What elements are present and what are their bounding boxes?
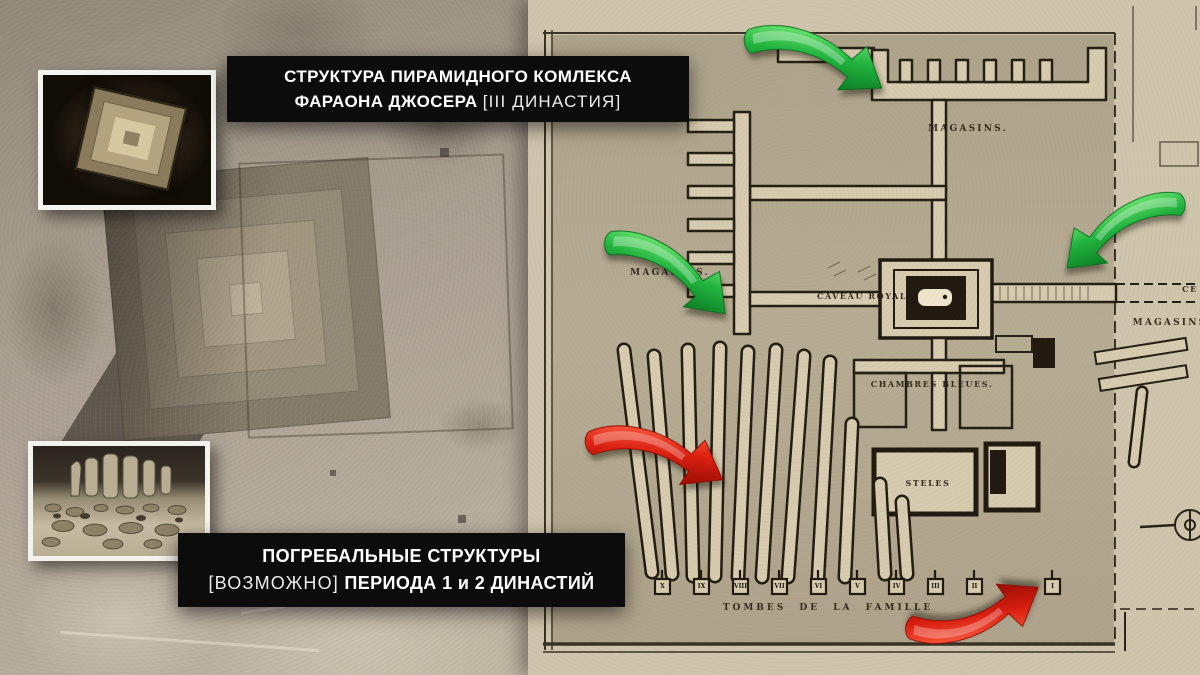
label-steles: STELES <box>906 478 951 488</box>
ruin-mark <box>330 470 336 476</box>
caption-line-light: [III ДИНАСТИЯ] <box>483 92 622 111</box>
tomb-numeral: VI <box>811 583 826 590</box>
caption-line: ПОГРЕБАЛЬНЫЕ СТРУКТУРЫ <box>178 543 625 570</box>
label-magasins-right: MAGASINS <box>1133 318 1200 328</box>
caption-banner-pyramid-complex: СТРУКТУРА ПИРАМИДНОГО КОМЛЕКСА ФАРАОНА Д… <box>227 56 689 122</box>
caption-line: СТРУКТУРА ПИРАМИДНОГО КОМЛЕКСА <box>227 64 689 89</box>
tomb-numeral: IX <box>694 583 709 590</box>
tomb-numeral: VII <box>772 583 787 590</box>
caption-line-light: [ВОЗМОЖНО] <box>208 573 339 593</box>
label-caveau-royal: CAVEAU ROYAL <box>817 291 907 301</box>
caption-banner-burial-structures: ПОГРЕБАЛЬНЫЕ СТРУКТУРЫ [ВОЗМОЖНО] ПЕРИОД… <box>178 533 625 607</box>
label-edge-partial: CE <box>1182 284 1198 294</box>
label-magasins-top: MAGASINS. <box>928 124 1008 134</box>
temple-enclosure-outline <box>238 153 513 438</box>
tomb-numeral: V <box>850 583 865 590</box>
tomb-numeral: VIII <box>733 583 748 590</box>
caption-line-bold: ФАРАОНА ДЖОСЕРА <box>295 92 478 111</box>
label-chambres-bleues: CHAMBRES BLEUES. <box>871 379 994 389</box>
caption-line-bold: ПЕРИОДА 1 и 2 ДИНАСТИЙ <box>344 573 594 593</box>
composite-graphic: MAGASINS. MAGASINS. CAVEAU ROYAL MAGASIN… <box>0 0 1200 675</box>
desert-track <box>60 631 320 652</box>
ruin-mark <box>458 515 466 523</box>
ruin-mark <box>440 148 449 157</box>
pyramid-top-view <box>75 86 188 190</box>
red-arrow-icon <box>568 412 738 512</box>
tomb-numeral: X <box>655 583 670 590</box>
inset-photo-pyramid-top-view <box>38 70 216 210</box>
